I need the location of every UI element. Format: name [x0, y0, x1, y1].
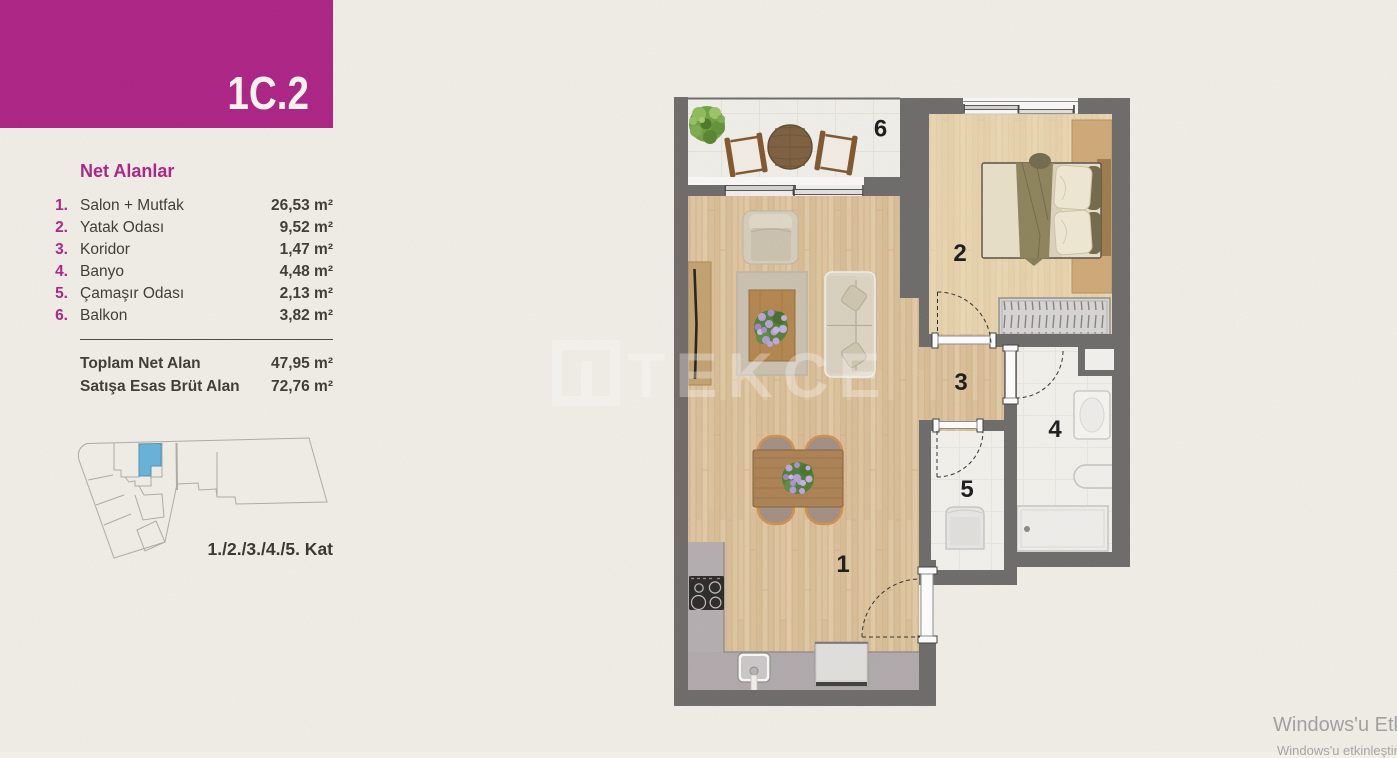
svg-text:2: 2 [953, 240, 966, 267]
svg-text:3: 3 [954, 369, 967, 396]
svg-text:1: 1 [836, 551, 849, 578]
svg-text:6: 6 [874, 116, 887, 143]
svg-text:TEKCE: TEKCE [627, 341, 891, 411]
svg-text:4: 4 [1048, 416, 1062, 443]
svg-text:5: 5 [960, 476, 973, 503]
